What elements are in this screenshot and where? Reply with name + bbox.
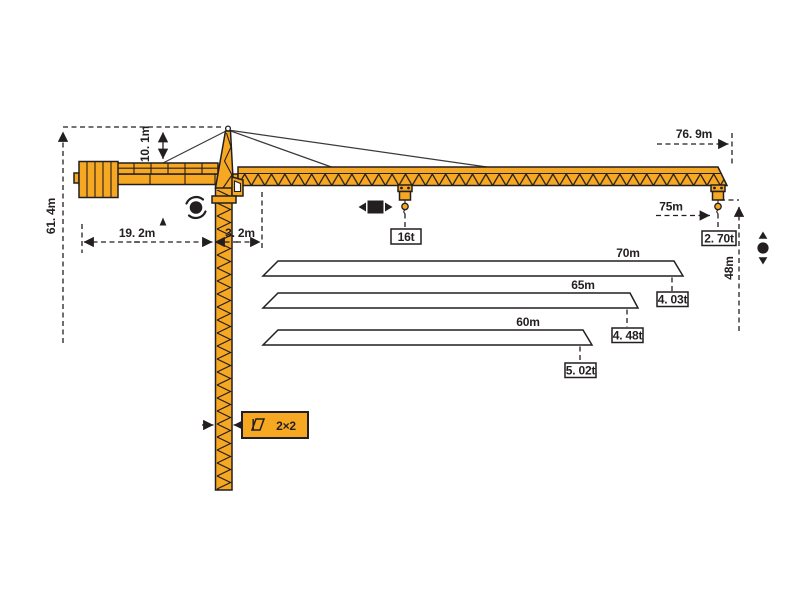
hoist-up-down-icon	[757, 232, 768, 265]
cab-window	[235, 181, 241, 192]
counter-jib	[74, 162, 238, 198]
variant-bar-65m	[263, 293, 638, 308]
hook-mid	[402, 203, 408, 209]
jib-variant-60m: 60m 5. 02t	[263, 315, 596, 378]
hook-tip	[715, 203, 721, 209]
hook-height-label: 48m	[722, 256, 736, 279]
variant-load-65m: 4. 48t	[613, 329, 643, 343]
tower-head	[216, 131, 234, 188]
variant-load-70m: 4. 03t	[658, 293, 688, 307]
max-load-label: 16t	[398, 230, 415, 244]
jib-tie-rod-near	[228, 130, 337, 169]
jib	[238, 167, 727, 186]
trolley-tip	[711, 185, 725, 214]
mast-section-box	[242, 412, 308, 438]
jib-tie-rod-far	[228, 130, 487, 167]
counterjib-length-label: 19. 2m	[119, 226, 155, 240]
counterweight	[79, 162, 118, 198]
variant-length-60m: 60m	[516, 315, 539, 329]
jib-lattice	[238, 174, 724, 186]
apex-pin	[226, 126, 231, 131]
head-height-aux-arrow	[160, 218, 167, 226]
max-radius-label: 75m	[659, 200, 682, 214]
tip-load-label: 2. 70t	[704, 232, 734, 246]
trolley-mid	[398, 185, 412, 214]
jib-overall-label: 76. 9m	[676, 127, 712, 141]
variant-bar-70m	[263, 261, 683, 276]
variant-length-70m: 70m	[616, 246, 639, 260]
head-height-label: 10. 1m	[138, 126, 152, 162]
variant-load-60m: 5. 02t	[566, 364, 596, 378]
variant-length-65m: 65m	[571, 278, 594, 292]
tower-mast	[212, 126, 243, 490]
total-height-label: 61. 4m	[44, 198, 58, 234]
tower-crane-diagram: 61. 4m 10. 1m 19. 2m 3. 2m 76. 9m 75m 48…	[0, 0, 800, 600]
counterjib-tie-rod	[163, 130, 228, 163]
rear-offset-label: 3. 2m	[225, 226, 255, 240]
slewing-icon	[187, 197, 206, 218]
trolley-travel-icon	[359, 201, 393, 214]
mast-section-label: 2×2	[276, 419, 296, 433]
slewing-platform	[212, 196, 236, 203]
dimension-annotations: 61. 4m 10. 1m 19. 2m 3. 2m 76. 9m 75m 48…	[44, 126, 739, 343]
variant-bar-60m	[263, 330, 592, 345]
